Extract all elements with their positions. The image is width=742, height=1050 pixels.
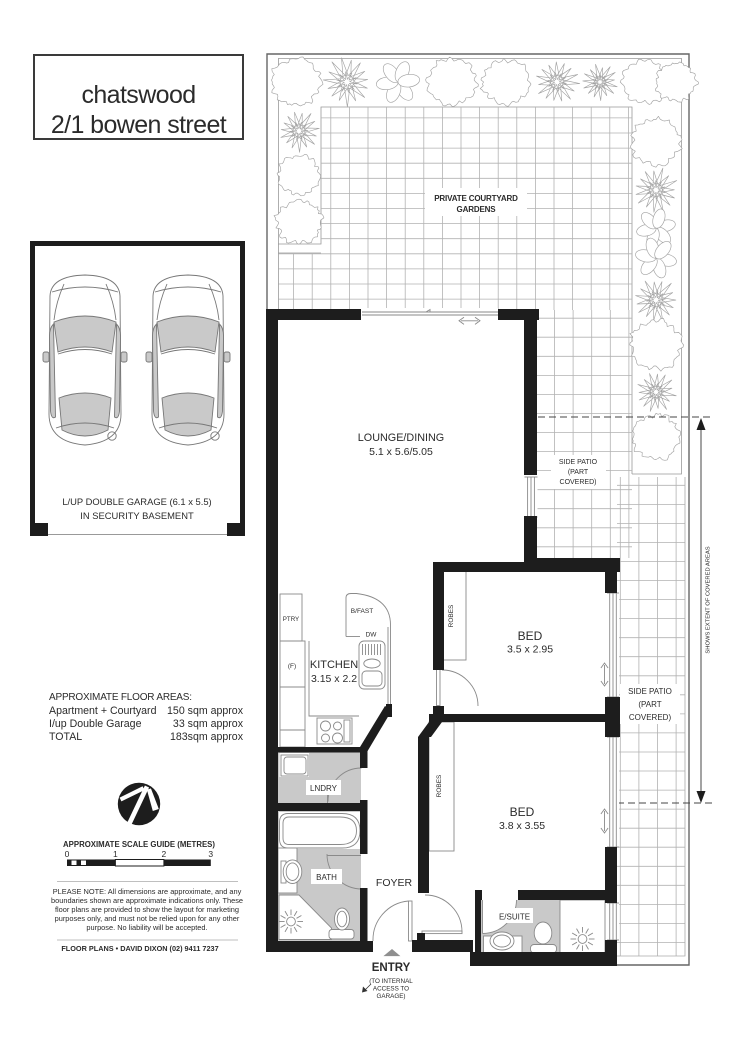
svg-text:purposes only, and must not be: purposes only, and must not be relied up… xyxy=(55,914,240,923)
svg-text:KITCHEN: KITCHEN xyxy=(310,659,358,671)
svg-text:PRIVATE COURTYARD: PRIVATE COURTYARD xyxy=(434,194,518,203)
svg-text:Apartment + Courtyard: Apartment + Courtyard xyxy=(49,705,157,717)
svg-text:DW: DW xyxy=(366,632,378,639)
svg-text:GARAGE): GARAGE) xyxy=(376,993,405,1000)
svg-text:L/UP DOUBLE GARAGE (6.1 x 5.5): L/UP DOUBLE GARAGE (6.1 x 5.5) xyxy=(62,496,211,507)
svg-text:ROBES: ROBES xyxy=(448,604,455,627)
svg-text:TOTAL: TOTAL xyxy=(49,731,82,743)
svg-text:APPROXIMATE SCALE GUIDE (METRE: APPROXIMATE SCALE GUIDE (METRES) xyxy=(63,840,215,849)
svg-text:3: 3 xyxy=(208,849,213,859)
svg-text:150 sqm approx: 150 sqm approx xyxy=(167,705,244,717)
svg-text:FLOOR PLANS • DAVID DIXON (02): FLOOR PLANS • DAVID DIXON (02) 9411 7237 xyxy=(61,944,218,953)
svg-text:COVERED): COVERED) xyxy=(560,479,597,486)
svg-text:LNDRY: LNDRY xyxy=(310,784,338,793)
svg-text:3.8 x 3.55: 3.8 x 3.55 xyxy=(499,820,545,832)
svg-text:(TO INTERNAL: (TO INTERNAL xyxy=(369,978,413,985)
svg-text:SIDE PATIO: SIDE PATIO xyxy=(628,687,672,696)
svg-text:GARDENS: GARDENS xyxy=(457,205,497,214)
svg-text:PTRY: PTRY xyxy=(283,616,299,623)
svg-text:FOYER: FOYER xyxy=(376,877,413,889)
svg-text:183sqm approx: 183sqm approx xyxy=(170,731,244,743)
svg-text:3.15 x 2.2: 3.15 x 2.2 xyxy=(311,673,357,685)
svg-text:B/FAST: B/FAST xyxy=(351,608,373,615)
svg-text:ACCESS TO: ACCESS TO xyxy=(373,986,409,993)
svg-text:3.5 x 2.95: 3.5 x 2.95 xyxy=(507,644,553,656)
svg-text:I/up Double Garage: I/up Double Garage xyxy=(49,718,142,730)
svg-text:SHOWS EXTENT OF COVERED AREAS: SHOWS EXTENT OF COVERED AREAS xyxy=(706,546,712,653)
svg-text:chatswood: chatswood xyxy=(81,81,195,109)
svg-text:1: 1 xyxy=(113,849,118,859)
svg-text:PLEASE NOTE: All dimensions: PLEASE NOTE: All dimensions are approxim… xyxy=(53,887,242,896)
svg-text:(PART: (PART xyxy=(638,700,661,709)
svg-text:ENTRY: ENTRY xyxy=(372,962,411,974)
svg-text:(F): (F) xyxy=(288,663,296,670)
svg-text:floor plans are provided to sh: floor plans are provided to show the lay… xyxy=(55,905,239,914)
svg-text:2/1 bowen street: 2/1 bowen street xyxy=(51,111,227,139)
svg-text:(PART: (PART xyxy=(568,469,589,476)
svg-text:0: 0 xyxy=(65,849,70,859)
svg-text:BED: BED xyxy=(510,805,535,819)
svg-text:purpose. No liability will be: purpose. No liability will be accepted. xyxy=(86,923,207,932)
svg-text:IN SECURITY BASEMENT: IN SECURITY BASEMENT xyxy=(80,510,194,521)
svg-text:2: 2 xyxy=(162,849,167,859)
svg-text:E/SUITE: E/SUITE xyxy=(499,913,530,922)
svg-text:COVERED): COVERED) xyxy=(629,713,672,722)
svg-text:SIDE PATIO: SIDE PATIO xyxy=(559,459,598,466)
svg-text:BATH: BATH xyxy=(316,873,337,882)
svg-text:boundaries shown are approxima: boundaries shown are approximate indicat… xyxy=(51,896,243,905)
svg-text:33 sqm approx: 33 sqm approx xyxy=(173,718,244,730)
svg-text:ROBES: ROBES xyxy=(436,774,443,797)
svg-text:LOUNGE/DINING: LOUNGE/DINING xyxy=(358,432,444,444)
svg-text:5.1 x 5.6/5.05: 5.1 x 5.6/5.05 xyxy=(369,446,433,458)
svg-text:APPROXIMATE FLOOR AREAS:: APPROXIMATE FLOOR AREAS: xyxy=(49,692,192,703)
svg-text:BED: BED xyxy=(518,629,543,643)
